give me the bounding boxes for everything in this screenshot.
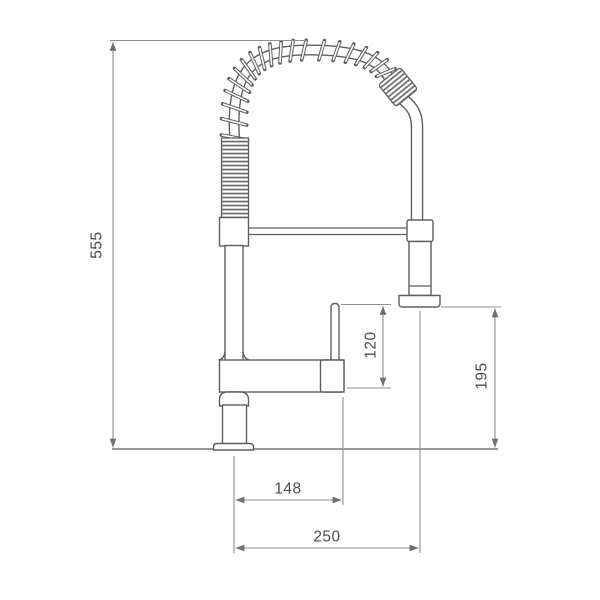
spring-spout-hose <box>221 40 417 222</box>
valve-cap <box>321 360 345 392</box>
dim-label-555: 555 <box>89 231 106 258</box>
base-flange <box>214 444 254 451</box>
spring-retainer-block <box>220 218 249 247</box>
lever-handle <box>331 304 339 364</box>
lower-column <box>223 405 247 444</box>
faucet-body <box>214 138 441 450</box>
dim-lever-height: 120 <box>341 305 391 389</box>
dim-spray-reach: 250 <box>236 311 421 553</box>
spray-tube-core <box>399 96 417 222</box>
spray-head <box>399 220 440 307</box>
dim-spray-face-height: 195 <box>441 307 501 448</box>
spring-ribbed-section <box>222 138 249 218</box>
riser-flare-right <box>243 352 250 360</box>
riser-flare-left <box>219 352 226 360</box>
spray-holder-block <box>407 220 433 242</box>
dim-label-195: 195 <box>474 362 491 389</box>
spray-body <box>409 242 431 296</box>
riser-column <box>225 246 243 362</box>
dim-label-120: 120 <box>363 331 380 358</box>
dim-label-148: 148 <box>274 481 301 498</box>
spray-face-flange <box>399 296 440 308</box>
body-shoulder <box>220 392 249 406</box>
dim-label-250: 250 <box>313 529 340 546</box>
faucet-dimension-drawing: 555 120 195 148 250 <box>0 0 600 600</box>
